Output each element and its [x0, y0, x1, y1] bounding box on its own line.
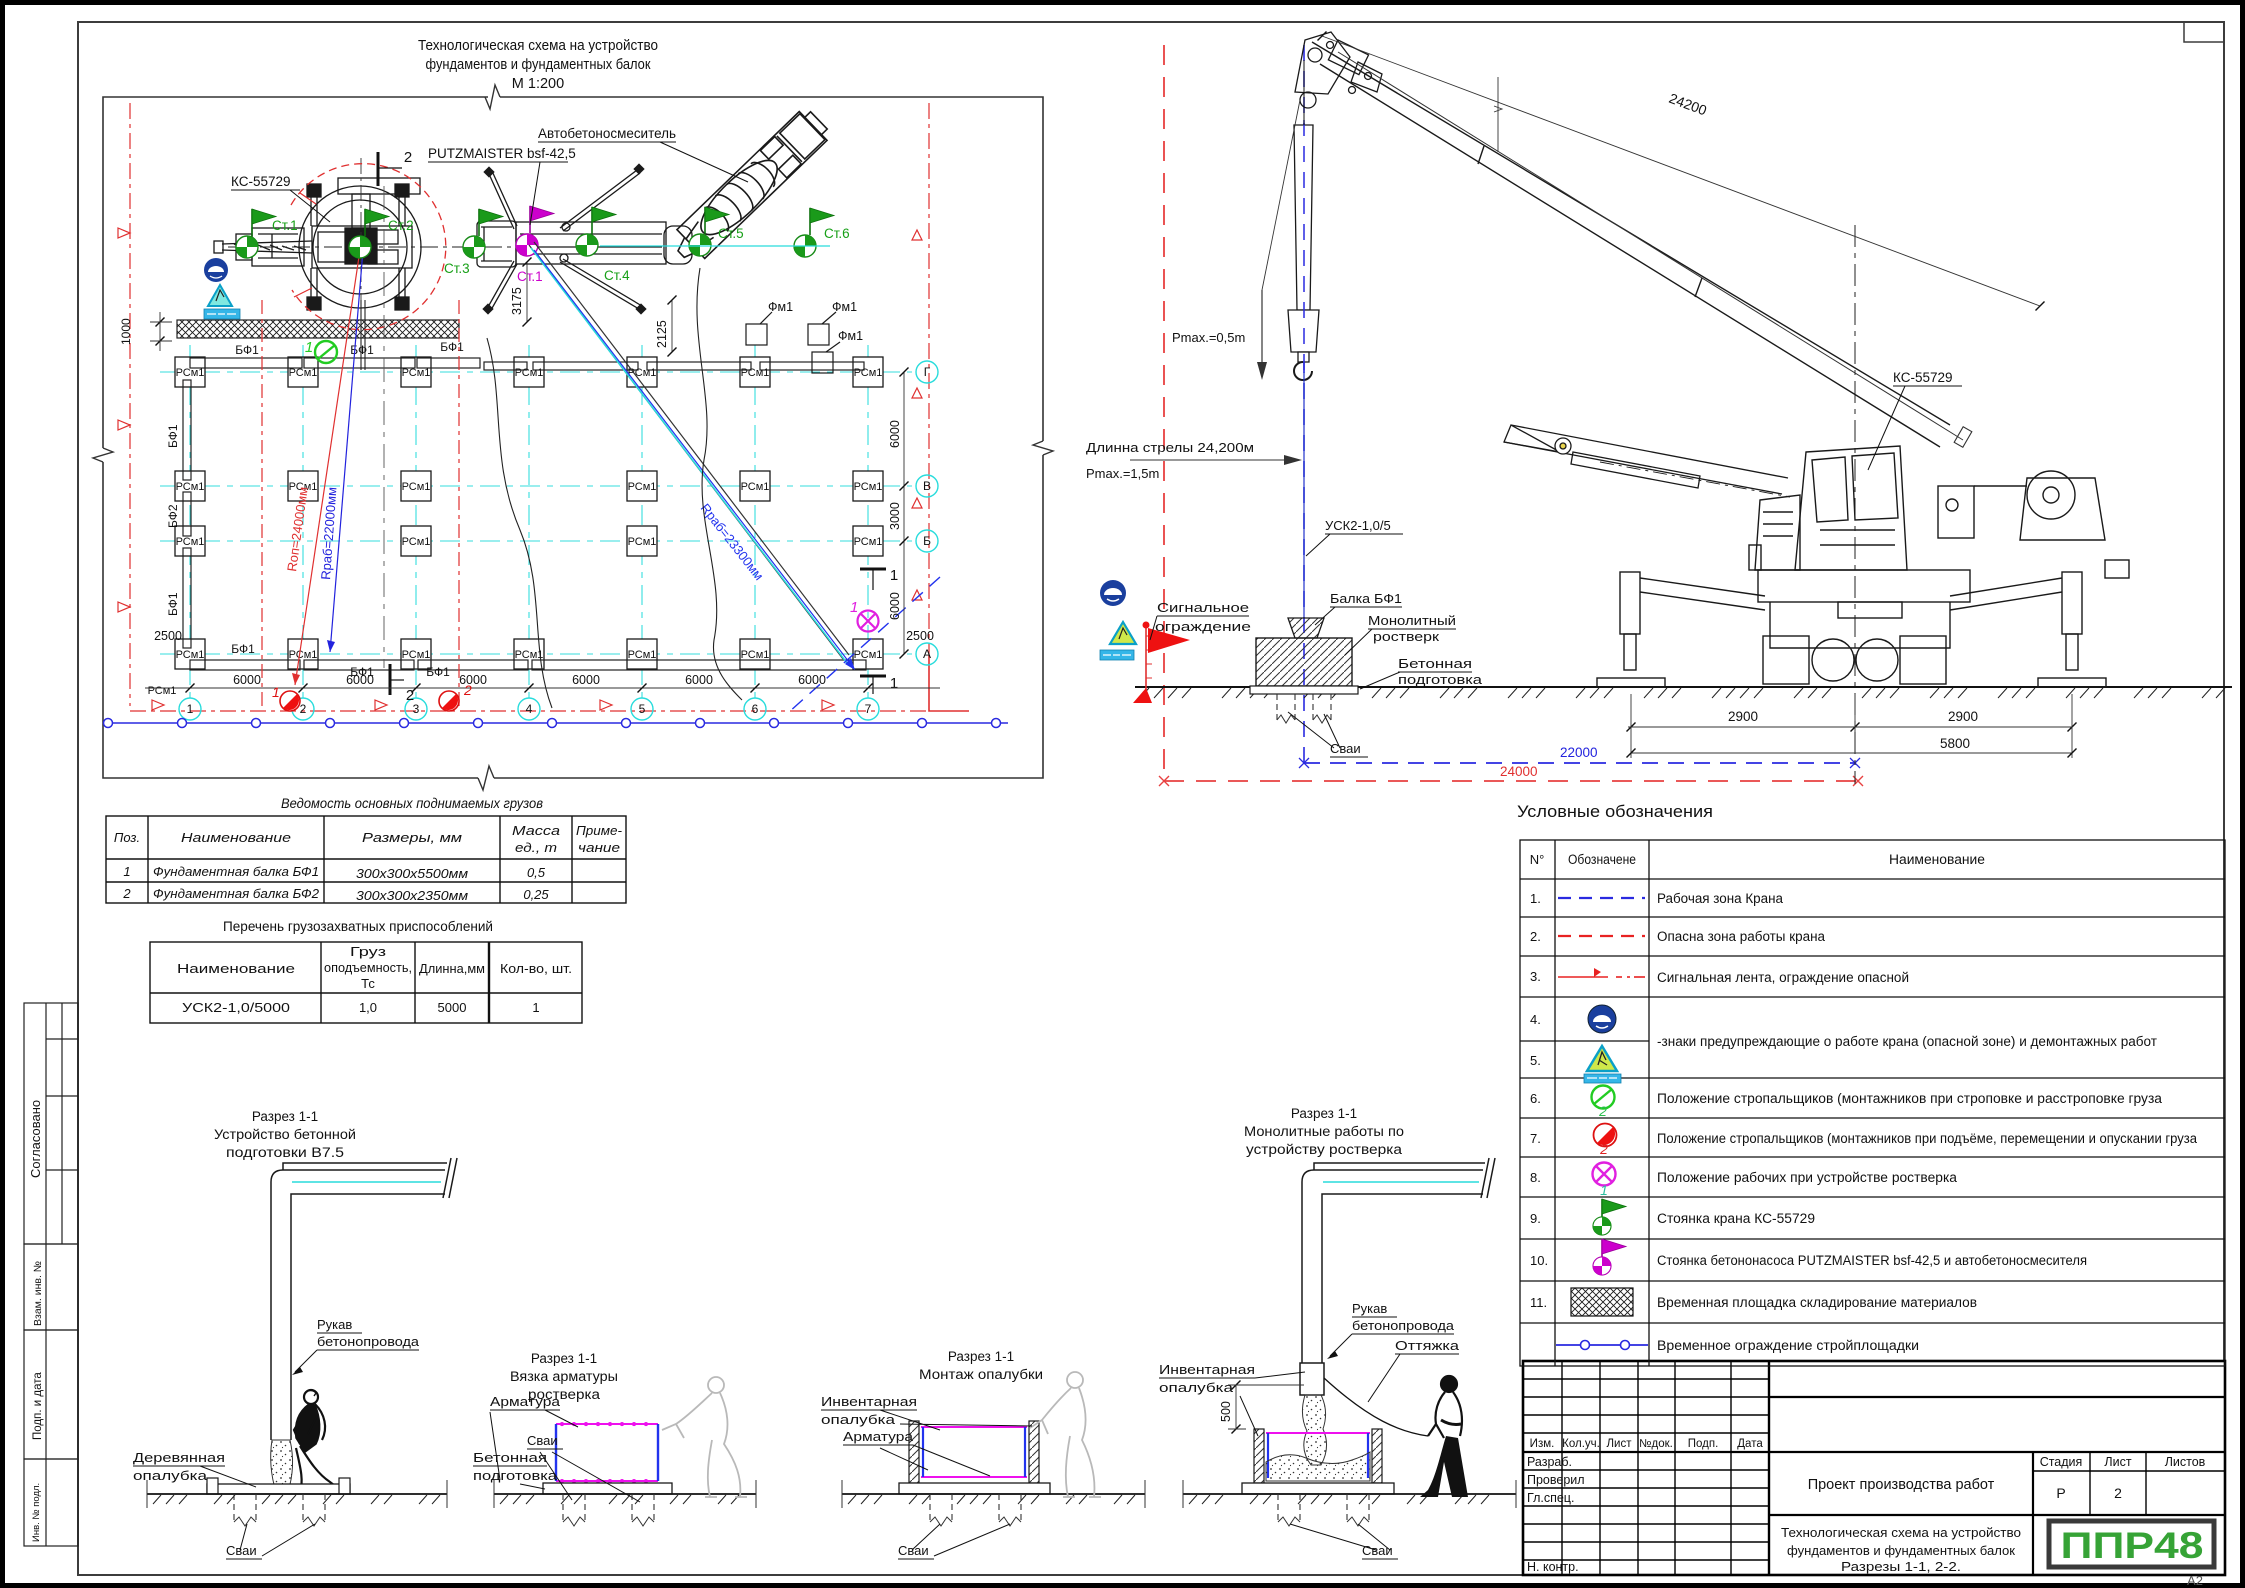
svg-text:БФ2: БФ2	[166, 504, 180, 528]
svg-text:ограждение: ограждение	[1155, 619, 1251, 634]
svg-text:Фм1: Фм1	[838, 329, 863, 343]
svg-text:Сваи: Сваи	[1362, 1543, 1393, 1558]
svg-text:1: 1	[890, 675, 898, 692]
svg-text:Наименование: Наименование	[181, 830, 291, 845]
svg-text:0,25: 0,25	[523, 887, 549, 902]
svg-text:1,0: 1,0	[359, 1000, 377, 1015]
svg-text:Оттяжка: Оттяжка	[1395, 1338, 1460, 1353]
svg-text:А: А	[923, 647, 931, 661]
svg-text:КС-55729: КС-55729	[1893, 370, 1953, 385]
svg-text:бетонопровода: бетонопровода	[317, 1334, 420, 1349]
svg-text:Ст.3: Ст.3	[444, 261, 470, 276]
svg-text:устройству ростверка: устройству ростверка	[1246, 1142, 1403, 1157]
svg-text:1: 1	[187, 702, 194, 716]
svg-text:2500: 2500	[906, 629, 934, 643]
svg-text:6: 6	[752, 702, 759, 716]
svg-text:5000: 5000	[438, 1000, 467, 1015]
svg-text:1: 1	[123, 864, 130, 879]
svg-text:2: 2	[122, 886, 131, 901]
svg-text:Кол-во, шт.: Кол-во, шт.	[500, 961, 572, 976]
svg-text:опалубка: опалубка	[133, 1468, 208, 1483]
svg-text:24000: 24000	[1500, 764, 1538, 779]
svg-text:Поз.: Поз.	[114, 830, 140, 845]
svg-text:Положение стропальщиков (монта: Положение стропальщиков (монтажников при…	[1657, 1091, 2162, 1106]
svg-text:Приме-: Приме-	[576, 823, 623, 838]
svg-text:0,5: 0,5	[527, 865, 546, 880]
svg-text:3: 3	[413, 702, 420, 716]
svg-text:Ст.4: Ст.4	[604, 268, 630, 283]
svg-text:Ведомость основных поднимаемых: Ведомость основных поднимаемых грузов	[281, 795, 543, 811]
svg-text:2900: 2900	[1728, 709, 1758, 724]
svg-text:Дата: Дата	[1737, 1438, 1763, 1450]
svg-text:Подп.: Подп.	[1688, 1438, 1719, 1450]
svg-text:Рукав: Рукав	[317, 1317, 352, 1332]
svg-text:11.: 11.	[1530, 1295, 1547, 1310]
svg-text:Проект производства работ: Проект производства работ	[1808, 1477, 1995, 1493]
svg-text:подготовка: подготовка	[473, 1468, 558, 1483]
svg-text:22000: 22000	[1560, 745, 1598, 760]
svg-text:6000: 6000	[572, 673, 600, 687]
svg-text:Р: Р	[2056, 1485, 2065, 1501]
svg-text:Сваи: Сваи	[1330, 741, 1361, 756]
svg-text:БФ1: БФ1	[426, 665, 450, 679]
svg-text:Масса: Масса	[512, 823, 560, 838]
svg-text:5.: 5.	[1530, 1053, 1541, 1068]
svg-text:РСм1: РСм1	[148, 685, 177, 697]
svg-text:3175: 3175	[510, 287, 524, 315]
svg-text:Положение рабочих при устройст: Положение рабочих при устройстве роствер…	[1657, 1170, 1957, 1185]
svg-text:7.: 7.	[1530, 1131, 1541, 1146]
svg-text:Балка БФ1: Балка БФ1	[1330, 591, 1402, 606]
svg-text:1000: 1000	[119, 318, 133, 345]
svg-text:2125: 2125	[655, 320, 669, 348]
svg-text:Разрез 1-1: Разрез 1-1	[948, 1349, 1014, 1364]
svg-text:300х300х5500мм: 300х300х5500мм	[356, 866, 468, 881]
svg-text:300х300х2350мм: 300х300х2350мм	[356, 888, 468, 903]
svg-text:БФ1: БФ1	[166, 424, 180, 448]
svg-text:500: 500	[1219, 1401, 1233, 1422]
svg-text:оподъемность,: оподъемность,	[324, 960, 412, 975]
svg-text:Рабочая зона Крана: Рабочая зона Крана	[1657, 891, 1783, 906]
svg-text:Бетонная: Бетонная	[473, 1450, 547, 1465]
svg-text:9.: 9.	[1530, 1211, 1541, 1226]
svg-text:1: 1	[1600, 1182, 1608, 1198]
svg-text:Сваи: Сваи	[527, 1433, 558, 1448]
svg-text:6000: 6000	[798, 673, 826, 687]
svg-text:подготовки В7.5: подготовки В7.5	[226, 1145, 344, 1160]
svg-text:Груз: Груз	[350, 944, 386, 959]
svg-text:2: 2	[300, 702, 307, 716]
svg-text:Б: Б	[923, 534, 931, 548]
svg-text:2500: 2500	[154, 629, 182, 643]
svg-text:-знаки предупреждающие о работ: -знаки предупреждающие о работе крана (о…	[1657, 1034, 2157, 1049]
svg-text:8.: 8.	[1530, 1170, 1541, 1185]
svg-text:Ст.2: Ст.2	[388, 218, 414, 233]
svg-text:Перечень грузозахватных приспо: Перечень грузозахватных приспособлений	[223, 918, 493, 934]
svg-text:Устройство бетонной: Устройство бетонной	[214, 1127, 356, 1142]
svg-text:Проверил: Проверил	[1527, 1473, 1585, 1487]
svg-text:бетонопровода: бетонопровода	[1352, 1318, 1455, 1333]
svg-text:УСК2-1,0/5: УСК2-1,0/5	[1325, 518, 1391, 533]
svg-text:6.: 6.	[1530, 1091, 1541, 1106]
svg-text:Сигнальная лента, ограждение о: Сигнальная лента, ограждение опасной	[1657, 970, 1909, 985]
svg-text:Лист: Лист	[2104, 1455, 2131, 1469]
svg-text:УСК2-1,0/5000: УСК2-1,0/5000	[182, 1000, 290, 1015]
svg-text:Стоянка бетононасоса PUTZMAIST: Стоянка бетононасоса PUTZMAISTER bsf-42,…	[1657, 1253, 2087, 1268]
svg-text:Технологическая схема на устро: Технологическая схема на устройство	[418, 38, 658, 54]
svg-text:2: 2	[463, 682, 472, 698]
svg-text:Фм1: Фм1	[768, 300, 793, 314]
svg-text:PUTZMAISTER bsf-42,5: PUTZMAISTER bsf-42,5	[428, 146, 576, 161]
svg-text:1.: 1.	[1530, 891, 1541, 906]
svg-text:2: 2	[404, 149, 412, 166]
svg-text:фундаментов и фундаментных бал: фундаментов и фундаментных балок	[426, 57, 652, 73]
svg-text:2: 2	[2114, 1485, 2122, 1501]
svg-text:Разрезы 1-1, 2-2.: Разрезы 1-1, 2-2.	[1841, 1559, 1961, 1574]
svg-text:Деревянная: Деревянная	[133, 1450, 225, 1465]
svg-text:Ст.6: Ст.6	[824, 226, 850, 241]
svg-text:Разраб.: Разраб.	[1527, 1455, 1572, 1469]
svg-text:Стадия: Стадия	[2040, 1455, 2083, 1469]
svg-text:1: 1	[850, 599, 858, 616]
svg-text:Временное ограждение стройплощ: Временное ограждение стройплощадки	[1657, 1338, 1919, 1353]
svg-text:Наименование: Наименование	[177, 961, 295, 976]
svg-text:Монолитные работы по: Монолитные работы по	[1244, 1124, 1404, 1139]
svg-text:1: 1	[890, 567, 898, 584]
svg-text:6000: 6000	[233, 673, 261, 687]
svg-text:В: В	[923, 479, 931, 493]
svg-text:Автобетоносмеситель: Автобетоносмеситель	[538, 126, 676, 141]
svg-text:2.: 2.	[1530, 929, 1541, 944]
svg-text:Тс: Тс	[361, 976, 375, 991]
svg-text:3000: 3000	[888, 502, 902, 530]
svg-text:Разрез 1-1: Разрез 1-1	[531, 1351, 597, 1366]
svg-text:6000: 6000	[888, 420, 902, 448]
svg-text:фундаментов и фундаментных бал: фундаментов и фундаментных балок	[1787, 1543, 2015, 1558]
svg-text:Согласовано: Согласовано	[28, 1100, 43, 1178]
svg-text:1: 1	[532, 1000, 539, 1015]
svg-text:Бетонная: Бетонная	[1398, 656, 1472, 671]
svg-text:Временная площадка складирован: Временная площадка складирование материа…	[1657, 1295, 1977, 1310]
svg-text:Подп. и дата: Подп. и дата	[32, 1372, 44, 1440]
svg-text:Pmax.=1,5m: Pmax.=1,5m	[1086, 466, 1159, 481]
svg-text:2900: 2900	[1948, 709, 1978, 724]
svg-text:опалубка: опалубка	[1159, 1380, 1234, 1395]
svg-text:Кол.уч.: Кол.уч.	[1562, 1438, 1600, 1450]
svg-text:10.: 10.	[1530, 1253, 1548, 1268]
svg-text:7: 7	[865, 702, 872, 716]
svg-text:2: 2	[1598, 1103, 1607, 1119]
svg-text:5800: 5800	[1940, 736, 1970, 751]
svg-text:2: 2	[1599, 1141, 1608, 1157]
svg-text:Технологическая схема на устро: Технологическая схема на устройство	[1781, 1525, 2021, 1540]
svg-text:опалубка: опалубка	[821, 1412, 896, 1427]
svg-text:БФ1: БФ1	[166, 592, 180, 616]
svg-text:4: 4	[526, 702, 533, 716]
svg-text:Г: Г	[924, 365, 931, 379]
svg-text:1: 1	[272, 684, 280, 700]
svg-text:Положение стропальщиков (монта: Положение стропальщиков (монтажников при…	[1657, 1131, 2197, 1146]
svg-text:Сваи: Сваи	[898, 1543, 929, 1558]
svg-text:БФ1: БФ1	[440, 340, 464, 354]
svg-text:Арматура: Арматура	[490, 1394, 561, 1409]
svg-text:5: 5	[639, 702, 646, 716]
svg-text:Листов: Листов	[2165, 1455, 2206, 1469]
svg-text:Инвентарная: Инвентарная	[821, 1394, 917, 1409]
svg-text:3.: 3.	[1530, 969, 1541, 984]
svg-text:Опасна зона работы крана: Опасна зона работы крана	[1657, 929, 1825, 944]
svg-text:Инвентарная: Инвентарная	[1159, 1362, 1255, 1377]
svg-text:Стоянка крана КС-55729: Стоянка крана КС-55729	[1657, 1211, 1815, 1226]
svg-text:Арматура: Арматура	[843, 1429, 914, 1444]
svg-text:М 1:200: М 1:200	[512, 76, 564, 92]
svg-text:№док.: №док.	[1639, 1438, 1673, 1450]
svg-text:Наименование: Наименование	[1889, 852, 1985, 867]
svg-text:Рукав: Рукав	[1352, 1301, 1387, 1316]
svg-text:4.: 4.	[1530, 1012, 1541, 1027]
svg-text:Фундаментная балка БФ1: Фундаментная балка БФ1	[153, 864, 319, 879]
svg-text:Фундаментная балка БФ2: Фундаментная балка БФ2	[153, 886, 320, 901]
svg-text:Фм1: Фм1	[832, 300, 857, 314]
svg-text:Монолитный: Монолитный	[1368, 613, 1456, 628]
svg-text:N°: N°	[1530, 852, 1545, 867]
svg-text:Взам. инв. №: Взам. инв. №	[32, 1261, 44, 1326]
svg-text:Ст.1: Ст.1	[517, 269, 543, 284]
svg-text:чание: чание	[578, 840, 620, 855]
svg-text:ППР48: ППР48	[2061, 1525, 2204, 1566]
svg-text:БФ1: БФ1	[235, 343, 259, 357]
svg-text:6000: 6000	[888, 592, 902, 620]
svg-text:БФ1: БФ1	[231, 642, 255, 656]
svg-text:Длинна стрелы 24,200м: Длинна стрелы 24,200м	[1086, 440, 1254, 455]
svg-text:КС-55729: КС-55729	[231, 174, 291, 189]
svg-text:6000: 6000	[685, 673, 713, 687]
svg-text:Сигнальное: Сигнальное	[1157, 600, 1249, 615]
svg-text:Длинна,мм: Длинна,мм	[419, 961, 485, 976]
svg-text:1: 1	[305, 339, 313, 356]
svg-text:6000: 6000	[346, 673, 374, 687]
svg-text:Инв. № подл.: Инв. № подл.	[31, 1483, 42, 1542]
svg-text:А2: А2	[2187, 1573, 2203, 1588]
svg-text:Обозначене: Обозначене	[1568, 852, 1636, 867]
svg-text:Условные обозначения: Условные обозначения	[1517, 802, 1713, 821]
svg-text:Гл.спец.: Гл.спец.	[1527, 1491, 1574, 1505]
svg-text:ростверк: ростверк	[1373, 629, 1439, 644]
svg-text:Разрез 1-1: Разрез 1-1	[252, 1109, 318, 1124]
svg-text:2: 2	[406, 687, 414, 704]
svg-text:Вязка арматуры: Вязка арматуры	[510, 1369, 618, 1384]
svg-text:Лист: Лист	[1607, 1438, 1633, 1450]
svg-text:Н. контр.: Н. контр.	[1527, 1560, 1579, 1574]
svg-text:Ст.5: Ст.5	[718, 226, 744, 241]
svg-text:подготовка: подготовка	[1398, 672, 1483, 687]
svg-text:Размеры, мм: Размеры, мм	[362, 830, 462, 845]
svg-text:Ст.1: Ст.1	[272, 218, 298, 233]
svg-text:Разрез 1-1: Разрез 1-1	[1291, 1106, 1357, 1121]
svg-text:ед., т: ед., т	[515, 840, 557, 855]
svg-text:Монтаж опалубки: Монтаж опалубки	[919, 1367, 1043, 1382]
svg-text:Изм.: Изм.	[1530, 1438, 1555, 1450]
svg-text:Pmax.=0,5m: Pmax.=0,5m	[1172, 330, 1245, 345]
